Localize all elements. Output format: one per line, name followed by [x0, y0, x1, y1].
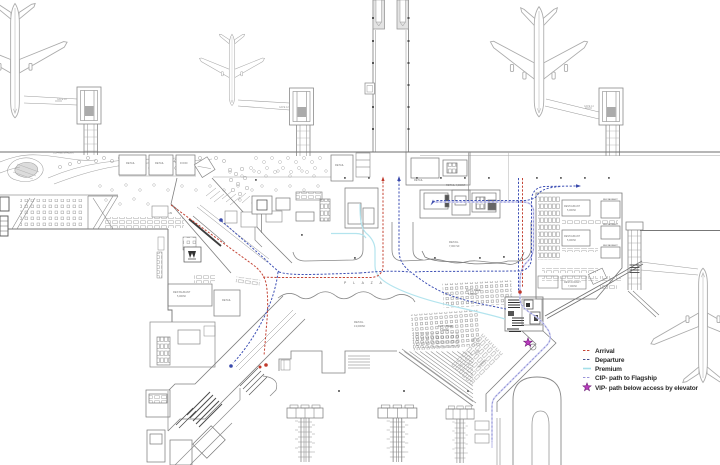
svg-text:5,000SF: 5,000SF	[567, 209, 577, 212]
svg-text:RETAIL: RETAIL	[126, 161, 135, 165]
svg-text:5,000SF: 5,000SF	[567, 239, 577, 242]
svg-text:7,000SF: 7,000SF	[568, 285, 578, 288]
svg-text:RETAIL: RETAIL	[414, 178, 423, 182]
svg-text:RETAIL: RETAIL	[449, 240, 459, 244]
svg-text:P L A Z A: P L A Z A	[344, 281, 385, 285]
svg-text:RETAIL: RETAIL	[222, 298, 231, 302]
svg-text:5,000SF: 5,000SF	[177, 295, 187, 298]
svg-text:CIP- path to Flagship: CIP- path to Flagship	[595, 375, 657, 382]
svg-text:8,000SF: 8,000SF	[468, 293, 478, 296]
svg-text:RESTAURANT: RESTAURANT	[564, 281, 581, 284]
svg-text:COFFEE GARDEN: COFFEE GARDEN	[53, 152, 74, 155]
svg-text:RESTAURANT: RESTAURANT	[564, 235, 581, 238]
svg-text:Premium: Premium	[595, 366, 622, 373]
svg-text:RETAIL: RETAIL	[155, 161, 164, 165]
svg-text:GATE 14: GATE 14	[584, 105, 594, 108]
svg-text:DUTY FREE: DUTY FREE	[466, 288, 481, 292]
svg-text:RETAIL: RETAIL	[335, 163, 344, 167]
svg-text:7,000 SF: 7,000 SF	[449, 244, 460, 248]
svg-text:Arrival: Arrival	[595, 348, 615, 355]
svg-text:RESTAURANT: RESTAURANT	[564, 205, 581, 208]
svg-text:RETAIL 4,000SF: RETAIL 4,000SF	[446, 183, 466, 187]
svg-text:13,000SF: 13,000SF	[354, 324, 366, 328]
svg-text:FOOD: FOOD	[180, 161, 188, 165]
svg-text:RESTAURANT: RESTAURANT	[173, 290, 191, 294]
svg-text:DUTY FREE: DUTY FREE	[438, 324, 453, 328]
svg-text:RETAIL: RETAIL	[354, 320, 364, 324]
svg-text:6,000SF: 6,000SF	[440, 329, 450, 332]
svg-text:GATE 12: GATE 12	[279, 106, 289, 109]
svg-text:Departure: Departure	[595, 357, 625, 364]
svg-text:VIP- path below access by elev: VIP- path below access by elevator	[595, 385, 699, 392]
svg-text:RESTAURANT: RESTAURANT	[603, 244, 618, 247]
svg-text:GATE 10: GATE 10	[57, 98, 67, 101]
svg-text:RESTAURANT: RESTAURANT	[603, 198, 618, 201]
